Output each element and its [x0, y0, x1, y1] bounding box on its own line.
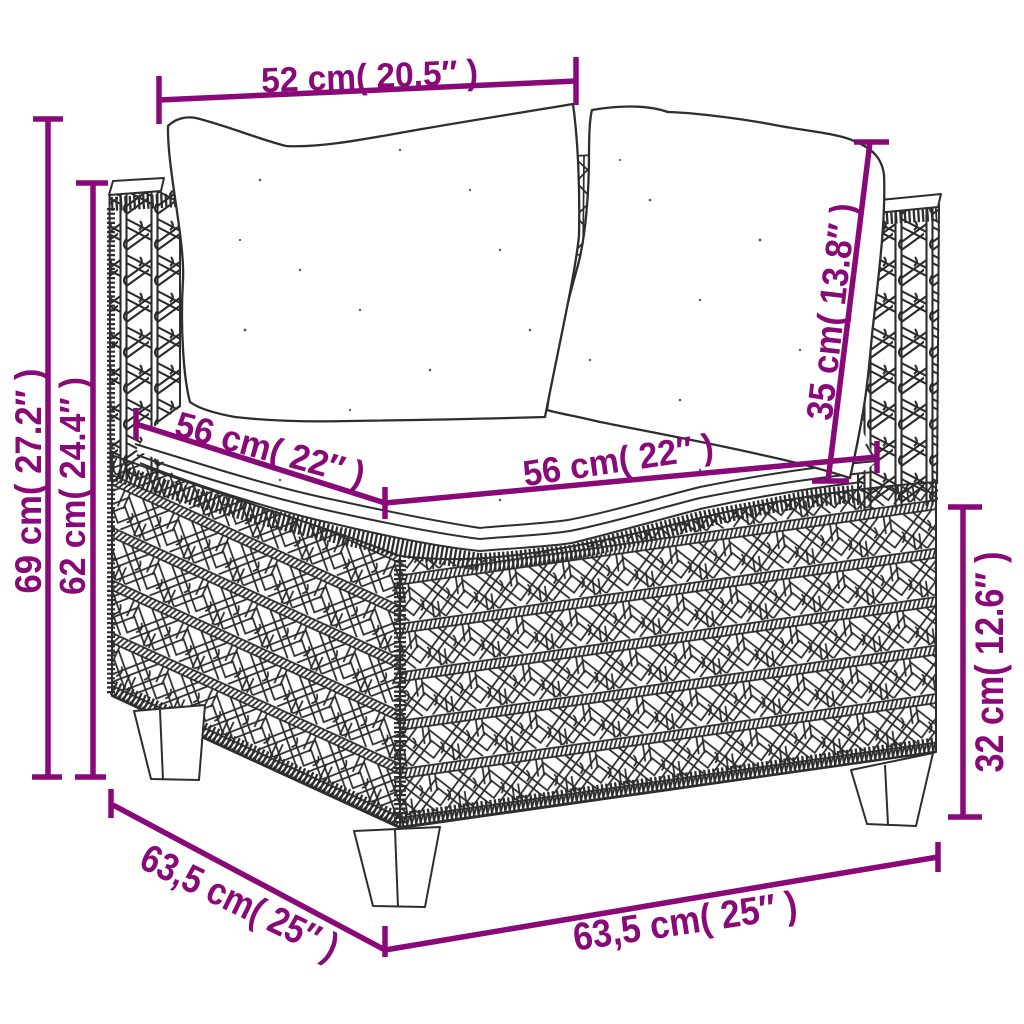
svg-text:62 cm( 24.4″ ): 62 cm( 24.4″ ) [52, 377, 93, 595]
svg-text:32 cm( 12.6″ ): 32 cm( 12.6″ ) [968, 552, 1012, 773]
svg-text:69 cm( 27.2″ ): 69 cm( 27.2″ ) [8, 369, 49, 594]
